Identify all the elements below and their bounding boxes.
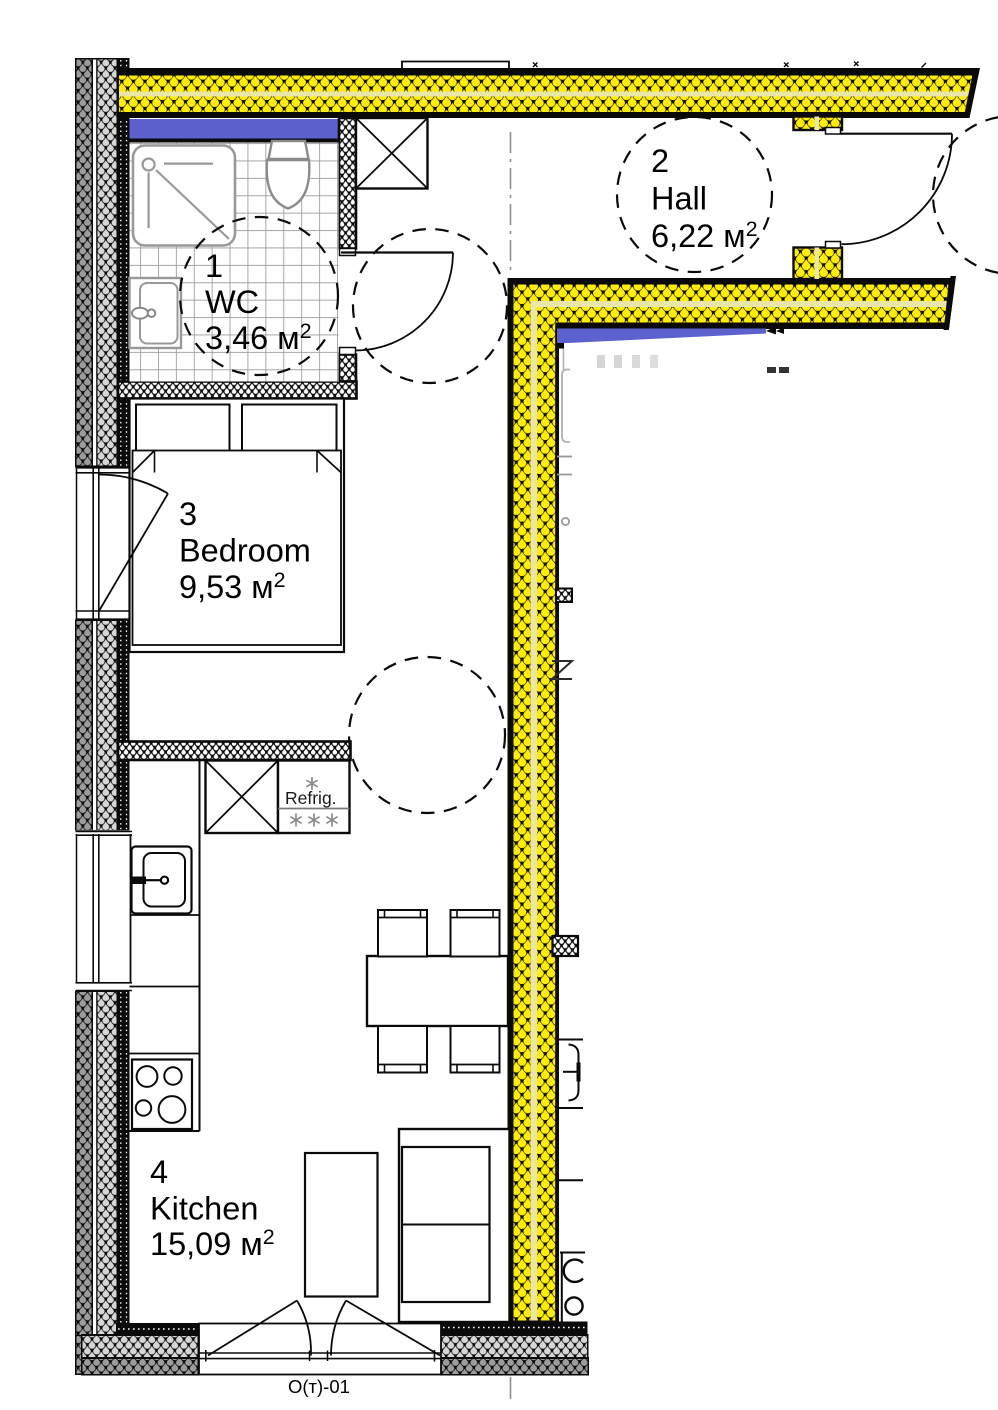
svg-text:15,09 м2: 15,09 м2 <box>150 1225 275 1262</box>
svg-text:WC: WC <box>205 284 259 320</box>
svg-text:3,46 м2: 3,46 м2 <box>205 319 312 356</box>
svg-text:О(т)-01: О(т)-01 <box>288 1376 350 1397</box>
svg-text:Kitchen: Kitchen <box>150 1191 258 1227</box>
svg-text:9,53 м2: 9,53 м2 <box>179 568 286 605</box>
svg-text:6,22 м2: 6,22 м2 <box>651 217 758 254</box>
svg-text:4: 4 <box>150 1154 168 1190</box>
svg-text:3: 3 <box>179 496 197 532</box>
svg-text:Bedroom: Bedroom <box>179 533 311 569</box>
svg-text:Hall: Hall <box>651 181 707 217</box>
svg-text:2: 2 <box>651 143 669 179</box>
svg-text:1: 1 <box>205 248 223 284</box>
svg-text:Refrig.: Refrig. <box>285 788 337 808</box>
